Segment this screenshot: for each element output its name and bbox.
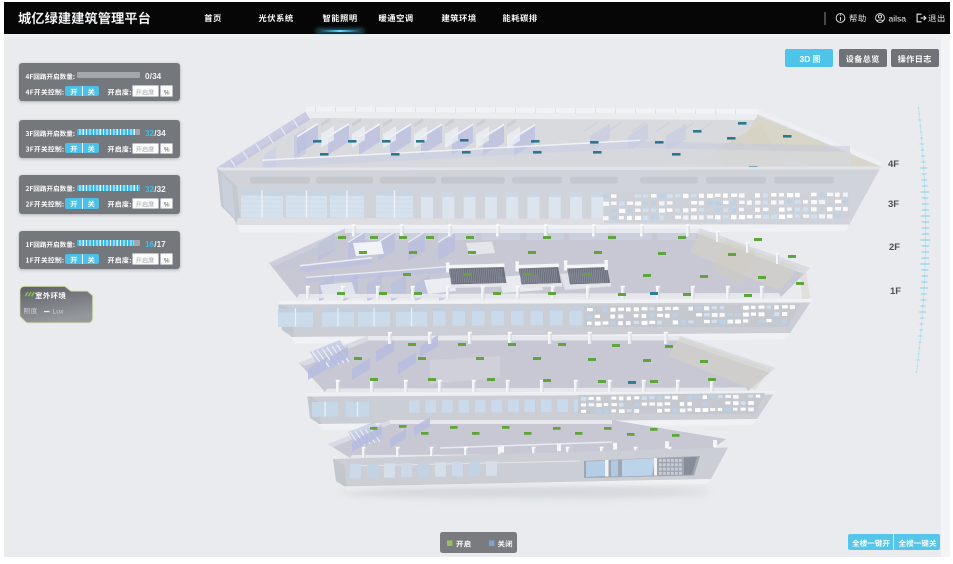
svg-text:3F: 3F [888,199,899,210]
svg-text:4F: 4F [888,159,899,170]
svg-text:%: % [163,89,169,96]
svg-text:Lux: Lux [53,309,65,316]
svg-text:%: % [163,257,169,264]
svg-text:2F: 2F [889,242,900,253]
svg-text:%: % [163,202,169,209]
svg-text:1F: 1F [890,286,901,297]
svg-text:%: % [163,146,169,153]
svg-text:3D: 3D [800,54,811,64]
